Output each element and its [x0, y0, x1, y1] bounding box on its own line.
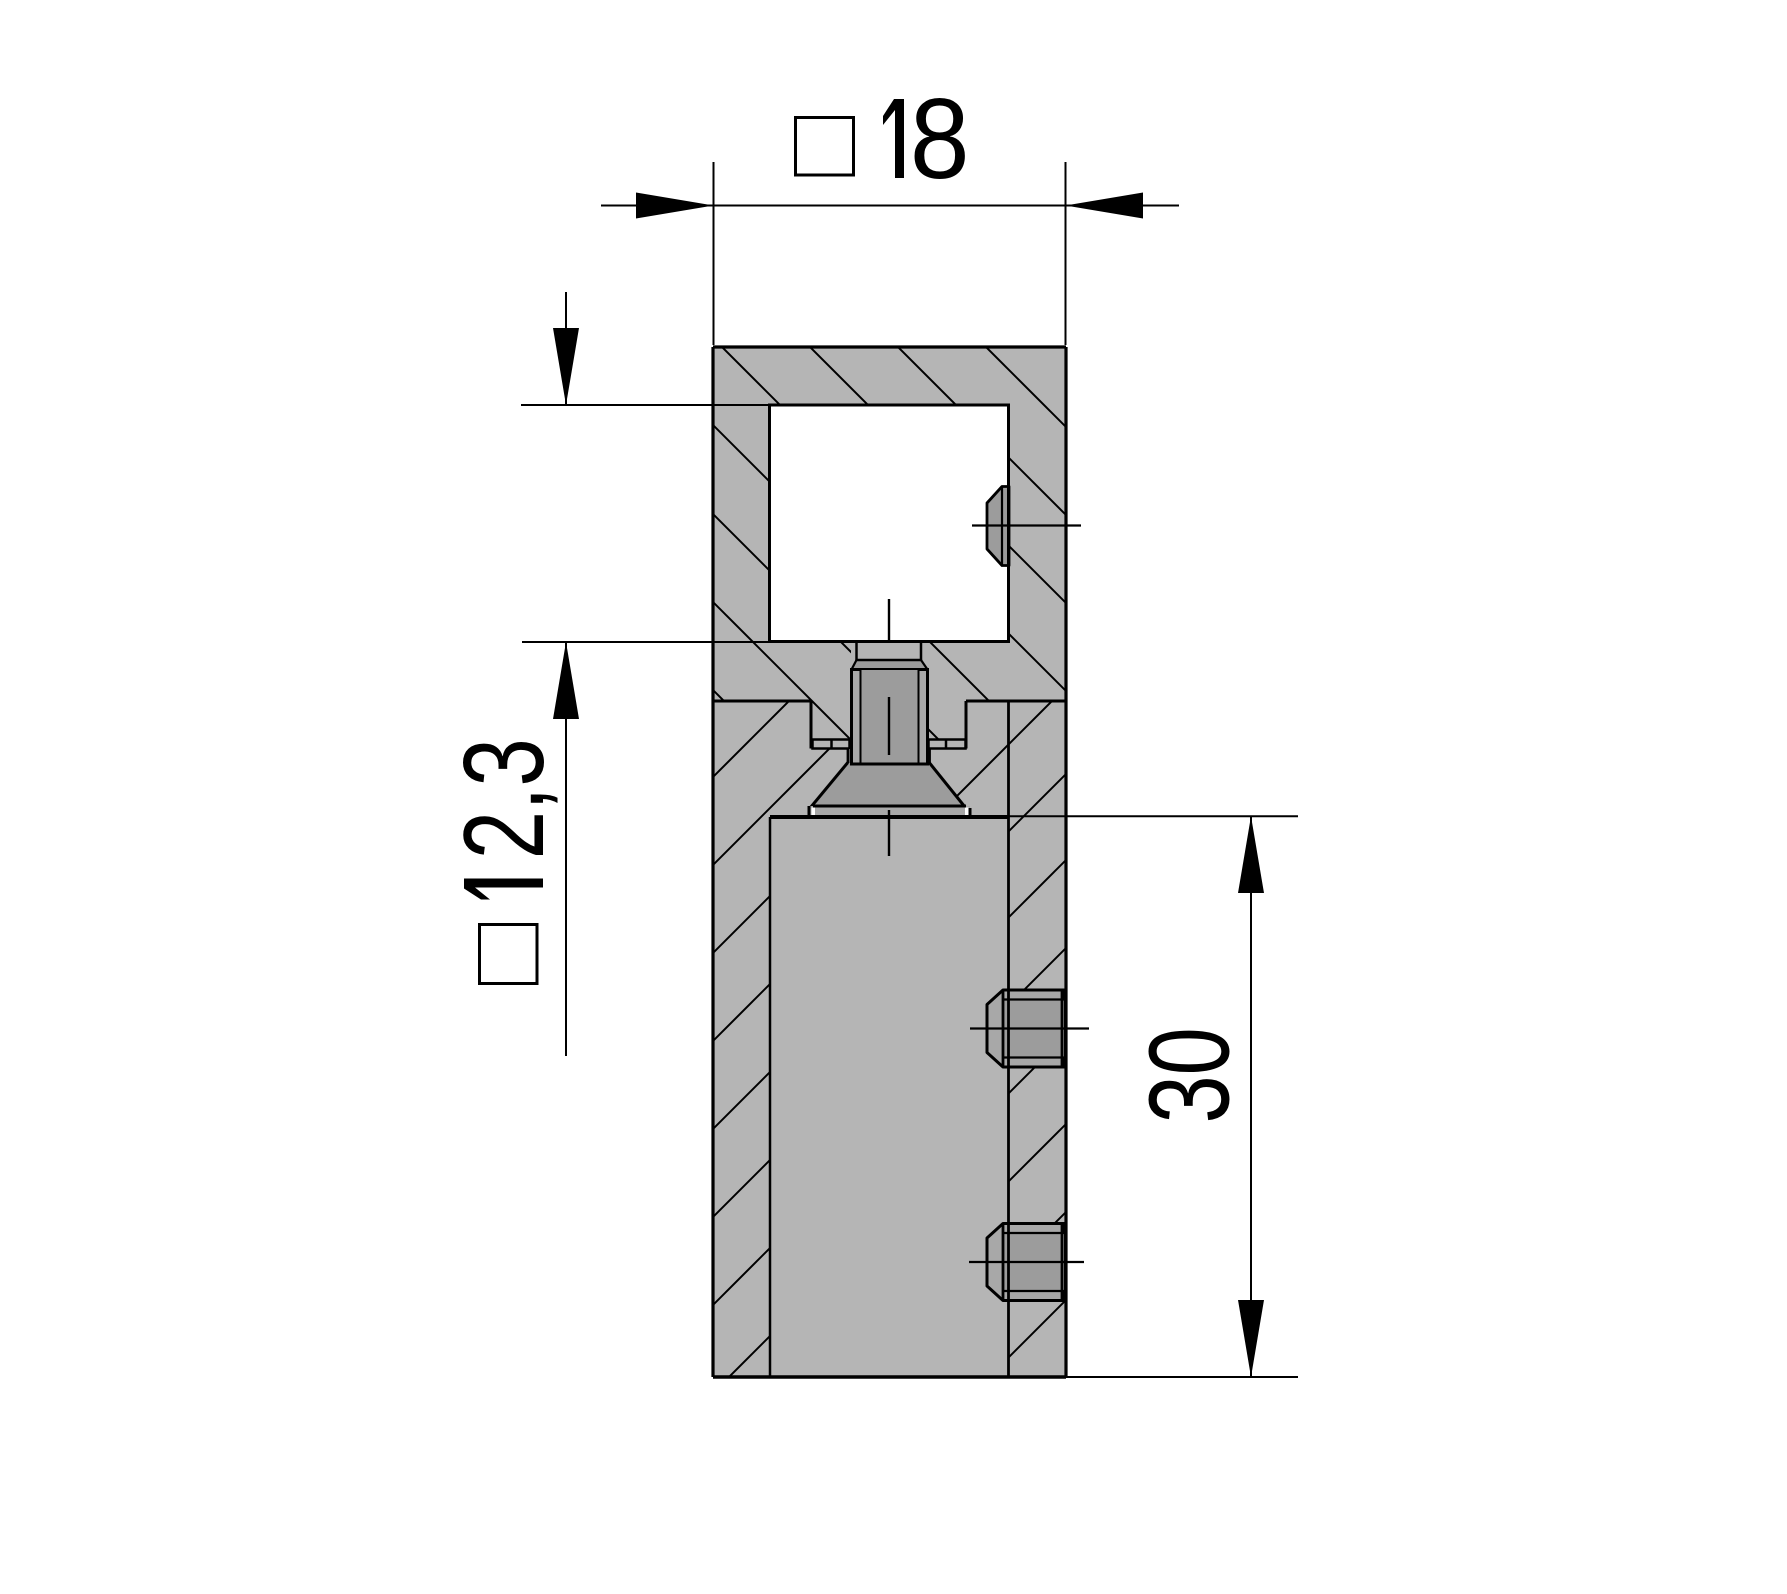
svg-text:30: 30: [1126, 1027, 1253, 1123]
svg-text:8: 8: [910, 76, 970, 203]
svg-text:2,3: 2,3: [440, 738, 568, 859]
